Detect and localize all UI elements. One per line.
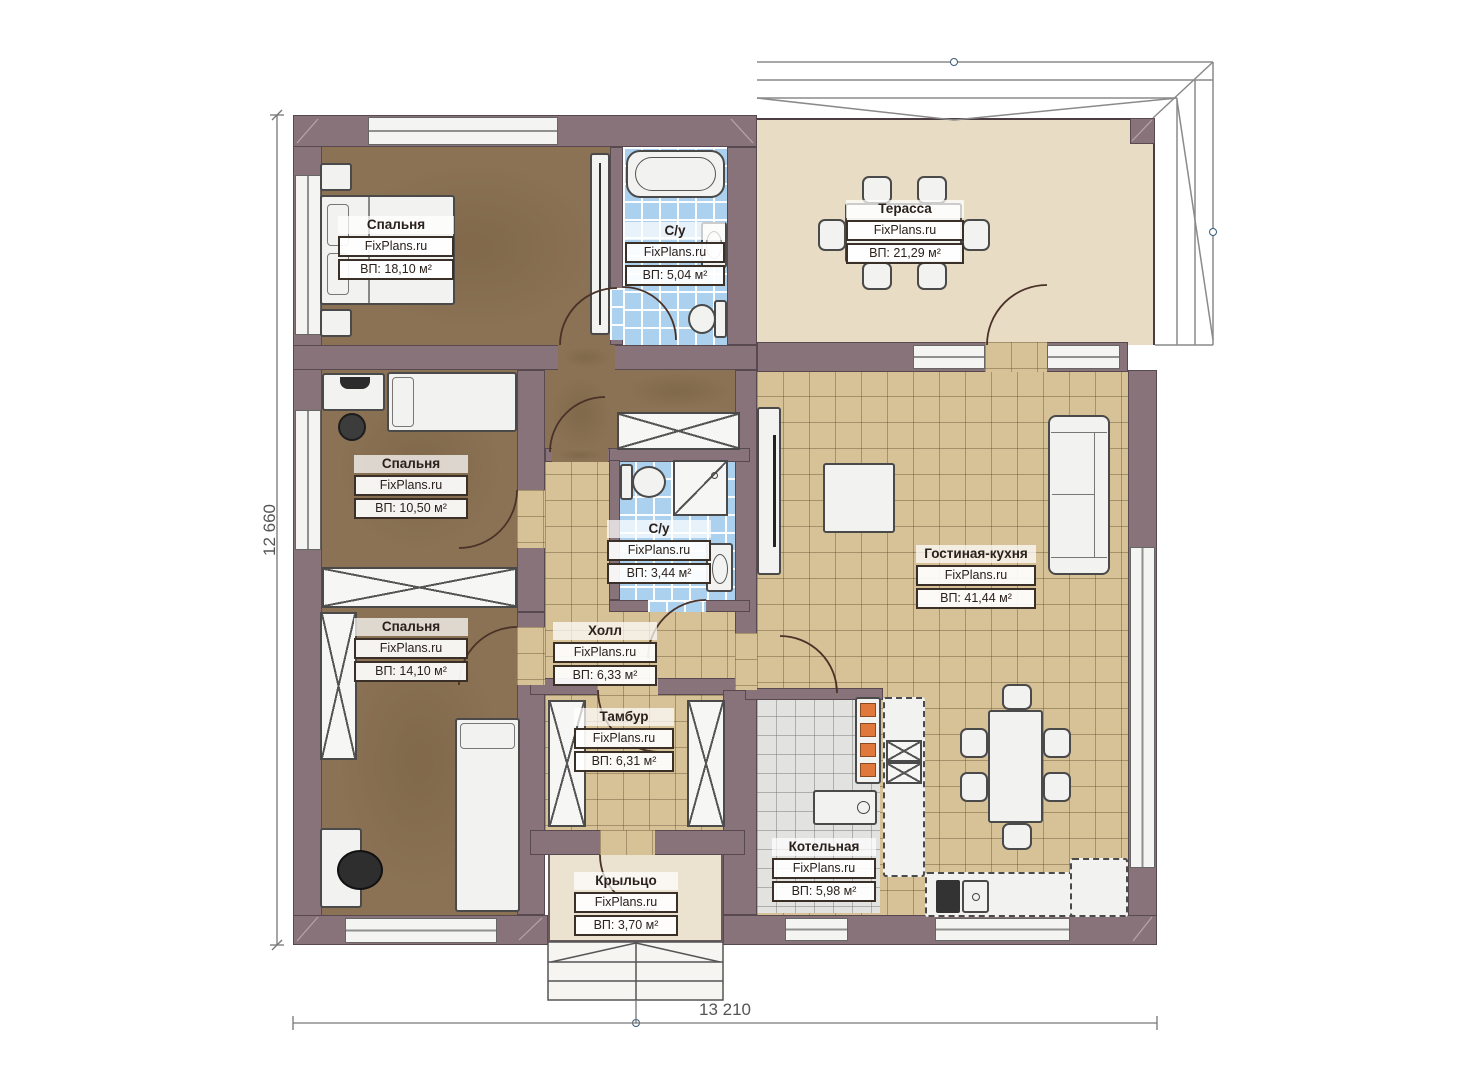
pillow — [460, 723, 515, 749]
door-gap-terrace — [985, 342, 1047, 372]
wardrobe — [617, 412, 740, 450]
chair — [1043, 772, 1071, 802]
room-area: ВП: 41,44 м² — [916, 588, 1036, 609]
sink-drainer — [936, 880, 960, 913]
corridor-top-floor — [617, 370, 740, 412]
shower-drain — [711, 472, 718, 479]
microwave — [886, 762, 922, 784]
room-name: Холл — [553, 622, 657, 640]
nightstand — [320, 309, 352, 337]
room-area: ВП: 3,70 м² — [574, 915, 678, 936]
tv-stand — [757, 407, 781, 575]
room-name: Спальня — [354, 618, 468, 636]
door-gap-bedroom1 — [558, 345, 615, 370]
watermark: FixPlans.ru — [625, 242, 725, 263]
room-area: ВП: 18,10 м² — [338, 259, 454, 280]
room-label-bedroom3: Спальня FixPlans.ru ВП: 14,10 м² — [354, 618, 468, 682]
window-bedroom3-bottom — [345, 918, 497, 943]
watermark: FixPlans.ru — [338, 236, 454, 257]
door-gap-bathroom1 — [610, 288, 623, 340]
room-name: С/у — [607, 520, 711, 538]
room-label-hall: Холл FixPlans.ru ВП: 6,33 м² — [553, 622, 657, 686]
room-label-porch: Крыльцо FixPlans.ru ВП: 3,70 м² — [574, 872, 678, 936]
room-area: ВП: 14,10 м² — [354, 661, 468, 682]
watermark: FixPlans.ru — [916, 565, 1036, 586]
dimension-left: 12 660 — [260, 485, 280, 575]
burner — [860, 743, 876, 757]
boiler-dial — [857, 801, 870, 814]
door-gap-bedroom3 — [517, 627, 545, 685]
watermark: FixPlans.ru — [553, 642, 657, 663]
room-area: ВП: 5,98 м² — [772, 881, 876, 902]
watermark: FixPlans.ru — [574, 728, 674, 749]
chair — [962, 219, 990, 251]
bathtub — [626, 150, 725, 198]
door-gap-vestibule-porch — [600, 830, 655, 855]
room-name: Гостиная-кухня — [916, 545, 1036, 563]
sofa-armrest — [1051, 419, 1107, 433]
chair — [1043, 728, 1071, 758]
dining-table — [988, 710, 1043, 823]
window-boiler-bottom — [785, 918, 848, 941]
room-name: Спальня — [354, 455, 468, 473]
room-name: Крыльцо — [574, 872, 678, 890]
corner-counter — [1070, 858, 1128, 917]
door-gap-nook — [552, 448, 608, 462]
sofa-back — [1094, 433, 1095, 557]
sofa — [1048, 415, 1110, 575]
room-name: Котельная — [772, 838, 876, 856]
coffee-table — [823, 463, 895, 533]
pillow — [392, 377, 414, 427]
wardrobe-mirror — [590, 153, 610, 335]
watermark: FixPlans.ru — [607, 540, 711, 561]
sofa-seat-line — [1052, 494, 1094, 495]
wardrobe — [320, 612, 357, 760]
window-bedroom1-left — [295, 175, 321, 335]
room-label-bathroom1: С/у FixPlans.ru ВП: 5,04 м² — [625, 222, 725, 286]
door-gap-bedroom2 — [517, 490, 545, 548]
chair — [1002, 684, 1032, 710]
window-bedroom2-left — [295, 410, 321, 550]
kitchen-sink — [962, 880, 989, 913]
toilet — [688, 304, 716, 334]
shower — [673, 460, 728, 516]
room-name: Терасса — [846, 200, 964, 218]
watermark: FixPlans.ru — [354, 638, 468, 659]
burner — [860, 703, 876, 717]
office-chair — [337, 850, 383, 890]
wall-south-of-bedroom1 — [293, 345, 757, 370]
floor-plan: 12 660 13 210 Спальня FixPlans.ru ВП: 18… — [0, 0, 1473, 1080]
tv — [773, 435, 776, 547]
nightstand — [320, 163, 352, 191]
chair — [1002, 823, 1032, 850]
stool — [338, 413, 366, 441]
window-living-right — [1130, 547, 1155, 868]
room-area: ВП: 3,44 м² — [607, 563, 711, 584]
dimension-bottom: 13 210 — [680, 1000, 770, 1020]
stove — [855, 697, 881, 784]
room-area: ВП: 21,29 м² — [846, 243, 964, 264]
wall-bath1-terrace — [727, 147, 757, 345]
chair — [818, 219, 846, 251]
boiler-unit — [813, 790, 877, 825]
faucet — [972, 893, 980, 901]
room-label-bathroom2: С/у FixPlans.ru ВП: 3,44 м² — [607, 520, 711, 584]
porch-steps — [548, 942, 723, 1000]
burner — [860, 723, 876, 737]
room-area: ВП: 6,33 м² — [553, 665, 657, 686]
toilet-tank — [714, 300, 727, 338]
room-area: ВП: 6,31 м² — [574, 751, 674, 772]
chair — [960, 728, 988, 758]
window-terrace-2 — [1047, 345, 1120, 369]
room-area: ВП: 5,04 м² — [625, 265, 725, 286]
window-bedroom1-top — [368, 117, 558, 145]
single-bed — [387, 372, 517, 432]
room-name: Тамбур — [574, 708, 674, 726]
corridor-nook-floor — [545, 370, 617, 457]
wardrobe — [322, 567, 517, 608]
watermark: FixPlans.ru — [846, 220, 964, 241]
terrace-corner-post — [1130, 118, 1155, 144]
chair — [917, 262, 947, 290]
dressing-table — [322, 373, 385, 411]
room-label-terrace: Терасса FixPlans.ru ВП: 21,29 м² — [846, 200, 964, 264]
single-bed — [455, 718, 520, 912]
mirror-line — [599, 163, 601, 325]
door-gap-bathroom2 — [648, 600, 706, 612]
room-name: С/у — [625, 222, 725, 240]
bathtub-basin — [635, 157, 716, 191]
toilet — [632, 466, 666, 498]
room-label-bedroom2: Спальня FixPlans.ru ВП: 10,50 м² — [354, 455, 468, 519]
watermark: FixPlans.ru — [574, 892, 678, 913]
room-label-vestibule: Тамбур FixPlans.ru ВП: 6,31 м² — [574, 708, 674, 772]
window-kitchen-bottom — [935, 918, 1070, 941]
table-mirror — [340, 377, 370, 389]
burner — [860, 763, 876, 777]
oven — [886, 740, 922, 762]
kitchen-counter — [883, 697, 925, 877]
chair — [960, 772, 988, 802]
chair — [862, 262, 892, 290]
room-label-living-kitchen: Гостиная-кухня FixPlans.ru ВП: 41,44 м² — [916, 545, 1036, 609]
room-area: ВП: 10,50 м² — [354, 498, 468, 519]
door-gap-hall-living — [735, 633, 757, 690]
wardrobe — [687, 700, 725, 827]
sofa-armrest — [1051, 557, 1107, 571]
wall-vestibule-east — [723, 690, 757, 915]
room-label-boiler: Котельная FixPlans.ru ВП: 5,98 м² — [772, 838, 876, 902]
basin-bowl — [712, 554, 728, 584]
window-terrace-1 — [913, 345, 985, 369]
watermark: FixPlans.ru — [772, 858, 876, 879]
room-name: Спальня — [338, 216, 454, 234]
room-label-bedroom1: Спальня FixPlans.ru ВП: 18,10 м² — [338, 216, 454, 280]
watermark: FixPlans.ru — [354, 475, 468, 496]
